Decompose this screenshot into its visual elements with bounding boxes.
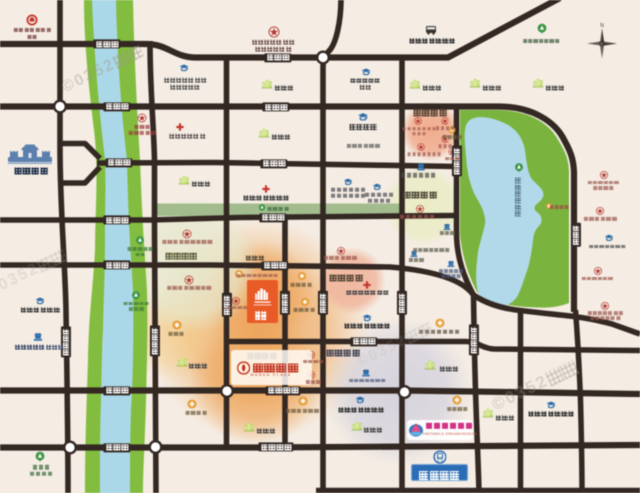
svg-text:N: N — [600, 23, 604, 29]
